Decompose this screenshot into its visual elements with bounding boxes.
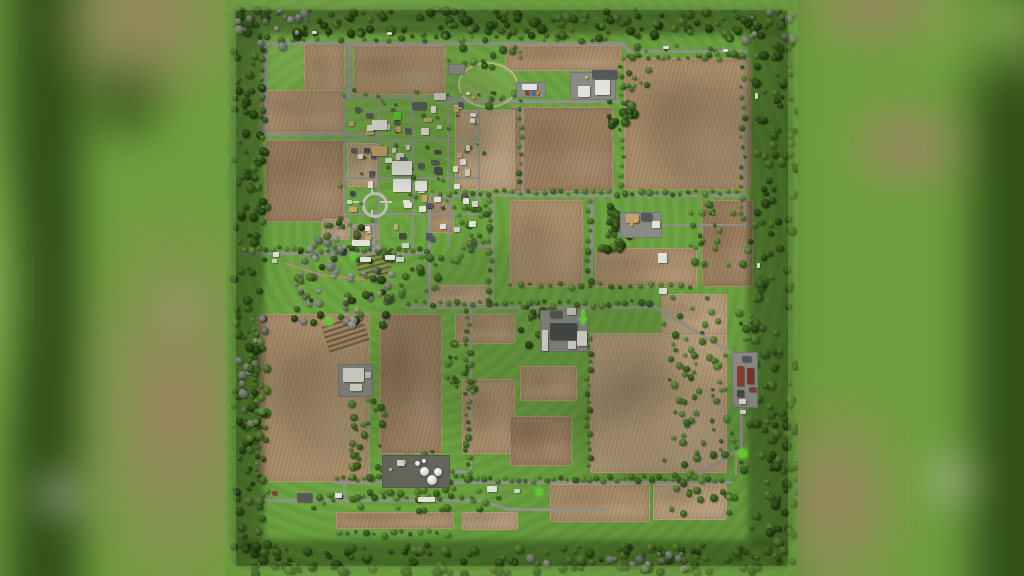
tree xyxy=(232,487,236,491)
building xyxy=(368,181,373,188)
tree xyxy=(254,468,258,472)
tree xyxy=(731,437,736,442)
field xyxy=(510,107,613,192)
town-house xyxy=(472,201,478,207)
dirt-path xyxy=(368,398,370,480)
road xyxy=(264,133,382,136)
tree xyxy=(499,98,502,101)
town-house xyxy=(350,191,354,195)
tree xyxy=(371,494,378,501)
tree xyxy=(638,284,643,289)
tree xyxy=(452,205,455,208)
tree xyxy=(249,213,258,222)
tree xyxy=(467,455,472,460)
tree xyxy=(260,67,265,72)
tree xyxy=(342,93,346,97)
tree xyxy=(292,562,298,568)
tree xyxy=(698,477,705,484)
tree xyxy=(587,198,592,203)
tree xyxy=(465,434,472,441)
tree xyxy=(720,16,725,21)
street xyxy=(343,139,478,141)
town-house xyxy=(402,243,409,248)
tree xyxy=(683,353,687,357)
tree xyxy=(381,411,386,416)
tree xyxy=(488,218,492,222)
tree xyxy=(328,11,334,17)
tree xyxy=(620,85,625,90)
tree xyxy=(446,93,449,96)
tree xyxy=(251,389,258,396)
tree xyxy=(608,123,614,129)
tree xyxy=(373,408,377,412)
tree xyxy=(305,293,310,298)
tree xyxy=(537,474,541,478)
tree xyxy=(460,558,467,565)
town-house xyxy=(405,128,411,134)
tree xyxy=(726,510,731,515)
rock xyxy=(789,34,798,43)
tree xyxy=(379,420,386,427)
tree xyxy=(496,496,501,501)
tree xyxy=(646,300,653,307)
tree xyxy=(337,183,342,188)
tree xyxy=(619,164,622,167)
tree xyxy=(252,156,257,161)
tree xyxy=(777,157,787,167)
tree xyxy=(502,188,506,192)
building xyxy=(352,240,370,246)
tree xyxy=(694,189,697,192)
tree xyxy=(680,510,687,517)
tree xyxy=(693,569,701,576)
tree xyxy=(446,552,451,557)
tree xyxy=(496,14,501,19)
tree xyxy=(460,570,469,576)
tree xyxy=(353,231,361,239)
tree xyxy=(459,17,463,21)
rock xyxy=(645,561,651,567)
tree xyxy=(701,7,711,17)
building xyxy=(415,181,427,191)
building xyxy=(297,493,312,502)
tree xyxy=(688,374,695,381)
town-house xyxy=(392,148,396,152)
tree xyxy=(619,92,623,96)
tree xyxy=(426,8,435,17)
tree xyxy=(252,377,257,382)
rock xyxy=(635,555,643,563)
building xyxy=(418,497,435,502)
tree xyxy=(734,27,741,34)
tree xyxy=(255,332,259,336)
tree xyxy=(458,253,463,258)
tree xyxy=(246,486,251,491)
tree xyxy=(730,50,738,58)
tree xyxy=(466,427,470,431)
tree xyxy=(619,21,625,27)
tree xyxy=(705,24,713,32)
tree xyxy=(476,488,480,492)
tree xyxy=(761,153,767,159)
tree xyxy=(245,469,250,474)
tree xyxy=(614,478,619,483)
tree xyxy=(607,114,612,119)
tree xyxy=(630,192,634,196)
rock xyxy=(612,557,616,561)
town-house xyxy=(454,184,460,189)
tree xyxy=(584,375,590,381)
tree xyxy=(348,400,356,408)
tree xyxy=(775,496,780,501)
tree xyxy=(585,548,594,557)
field xyxy=(505,45,621,71)
town-house xyxy=(454,106,459,112)
tree xyxy=(444,532,451,539)
tree xyxy=(669,506,675,512)
tree xyxy=(525,341,534,350)
town-house xyxy=(349,121,354,126)
tree xyxy=(448,493,454,499)
tree xyxy=(589,560,595,566)
tree xyxy=(277,245,281,249)
field xyxy=(625,58,751,190)
tree xyxy=(648,281,654,287)
tree xyxy=(233,329,243,339)
tree xyxy=(464,476,471,483)
tree xyxy=(712,245,718,251)
tree xyxy=(690,223,696,229)
town-house xyxy=(460,159,466,165)
tree xyxy=(453,474,458,479)
tree xyxy=(259,476,267,484)
building xyxy=(740,410,746,414)
tree xyxy=(639,81,642,84)
tree xyxy=(606,29,610,33)
tree xyxy=(438,192,442,196)
rock xyxy=(257,40,264,47)
rock xyxy=(326,262,335,271)
tree xyxy=(598,281,602,285)
building xyxy=(434,93,446,100)
tree xyxy=(360,422,366,428)
tree xyxy=(424,542,430,548)
tree xyxy=(264,488,270,494)
tree xyxy=(586,463,590,467)
road xyxy=(343,481,346,501)
tree xyxy=(309,298,313,302)
tree xyxy=(679,411,684,416)
tree xyxy=(607,203,613,209)
tree xyxy=(775,73,779,77)
tree xyxy=(413,194,418,199)
building xyxy=(595,80,610,95)
town-house xyxy=(365,226,370,231)
building xyxy=(389,468,392,471)
tree xyxy=(261,456,266,461)
tree xyxy=(598,302,605,309)
tree xyxy=(739,135,742,138)
tree xyxy=(341,475,345,479)
field xyxy=(462,512,518,530)
town-house xyxy=(437,125,442,129)
tree xyxy=(787,139,795,147)
tree xyxy=(463,392,466,395)
tree xyxy=(489,258,494,263)
tree xyxy=(416,14,423,21)
tree xyxy=(430,303,436,309)
tree xyxy=(470,191,475,196)
tree xyxy=(681,433,686,438)
tree xyxy=(253,419,259,425)
tree xyxy=(739,563,747,571)
town-house xyxy=(358,154,363,158)
tree xyxy=(368,248,371,251)
tree xyxy=(701,440,706,445)
tree xyxy=(517,179,522,184)
tree xyxy=(686,56,689,59)
tree xyxy=(534,191,538,195)
tree xyxy=(454,299,460,305)
tree xyxy=(258,408,266,416)
building xyxy=(641,213,652,221)
tree xyxy=(430,450,434,454)
field xyxy=(260,90,345,133)
tree xyxy=(572,477,579,484)
building xyxy=(737,390,744,397)
tree xyxy=(713,363,720,370)
tree xyxy=(358,312,363,317)
tree xyxy=(255,497,264,506)
tree xyxy=(302,38,305,41)
tree xyxy=(585,208,590,213)
tree xyxy=(394,103,397,106)
tree xyxy=(232,319,240,327)
building xyxy=(652,221,660,228)
town-house xyxy=(349,207,357,212)
rock xyxy=(384,282,392,290)
tree xyxy=(779,546,788,555)
tree xyxy=(759,219,765,225)
town-house xyxy=(421,128,429,135)
building xyxy=(755,93,758,99)
town-house xyxy=(457,153,461,158)
tree xyxy=(764,419,769,424)
tree xyxy=(574,189,578,193)
tree xyxy=(753,563,762,572)
tree xyxy=(483,204,487,208)
tree xyxy=(686,471,693,478)
town-house xyxy=(431,160,439,165)
tree xyxy=(748,314,752,318)
tree xyxy=(742,115,748,121)
tree xyxy=(260,85,265,90)
silo-tank xyxy=(427,475,437,485)
tree xyxy=(717,380,721,384)
tree xyxy=(380,489,385,494)
building xyxy=(747,368,754,384)
tree xyxy=(486,298,491,303)
tree xyxy=(331,498,335,502)
tree xyxy=(435,531,438,534)
tree xyxy=(523,478,527,482)
building xyxy=(737,366,744,386)
tree xyxy=(775,218,782,225)
tree xyxy=(516,143,521,148)
tree xyxy=(598,190,603,195)
town-house xyxy=(465,169,470,176)
tree xyxy=(565,477,568,480)
street xyxy=(343,97,478,99)
tree xyxy=(645,67,652,74)
tree xyxy=(516,170,522,176)
town-house xyxy=(431,106,437,113)
tree xyxy=(493,9,498,14)
tree xyxy=(470,546,479,555)
tree xyxy=(357,444,362,449)
tree xyxy=(776,245,784,253)
tree xyxy=(418,254,423,259)
tree xyxy=(686,190,690,194)
tree xyxy=(245,71,253,79)
tree xyxy=(714,51,719,56)
tree xyxy=(746,421,753,428)
tree xyxy=(482,499,489,506)
building xyxy=(396,257,404,262)
tree xyxy=(788,282,794,288)
tree xyxy=(248,88,255,95)
road xyxy=(348,42,351,99)
tree xyxy=(673,348,678,353)
tree xyxy=(437,497,442,502)
building xyxy=(749,387,756,392)
tree xyxy=(379,321,387,329)
tree xyxy=(668,282,673,287)
tree xyxy=(232,389,237,394)
tree xyxy=(464,343,467,346)
tree xyxy=(758,119,763,124)
tree xyxy=(788,72,792,76)
tree xyxy=(599,23,605,29)
silo-tank xyxy=(422,459,426,463)
tree xyxy=(258,208,265,215)
town-house xyxy=(453,166,458,173)
field xyxy=(336,512,454,529)
rock xyxy=(315,300,322,307)
tree xyxy=(350,452,357,459)
tree xyxy=(455,385,458,388)
building xyxy=(472,96,475,99)
building xyxy=(525,91,529,95)
tree xyxy=(490,52,496,58)
tree xyxy=(794,488,798,496)
building xyxy=(723,49,728,52)
building xyxy=(312,31,317,34)
tree xyxy=(231,157,236,162)
town-house xyxy=(351,148,357,153)
tree xyxy=(786,62,792,68)
tree xyxy=(782,416,788,422)
building xyxy=(578,86,590,97)
tree xyxy=(402,568,412,576)
tree xyxy=(317,311,325,319)
tree xyxy=(476,505,482,511)
tree xyxy=(453,342,457,346)
rock xyxy=(261,327,269,335)
tree xyxy=(618,173,623,178)
tree xyxy=(518,191,522,195)
rock xyxy=(278,42,287,51)
tree xyxy=(775,555,782,562)
blurred-backdrop-right xyxy=(798,0,1024,576)
tree xyxy=(761,255,766,260)
tree xyxy=(255,454,260,459)
tree xyxy=(467,350,473,356)
tree xyxy=(588,455,594,461)
tree xyxy=(469,233,473,237)
town-house xyxy=(454,227,460,233)
tree xyxy=(687,29,693,35)
tree xyxy=(416,264,424,272)
rock xyxy=(316,289,320,293)
tree xyxy=(443,504,451,512)
tree xyxy=(374,38,378,42)
tree xyxy=(465,315,469,319)
building xyxy=(542,330,548,351)
tree xyxy=(703,556,707,560)
tree xyxy=(511,92,516,97)
tree xyxy=(772,90,778,96)
building xyxy=(273,252,279,257)
tree xyxy=(787,226,797,236)
tree xyxy=(682,399,688,405)
tree xyxy=(402,25,407,30)
rock xyxy=(779,14,785,20)
tree xyxy=(628,284,632,288)
tree xyxy=(441,206,444,209)
tree xyxy=(614,300,620,306)
tree xyxy=(621,146,624,149)
tree xyxy=(245,497,253,505)
tree xyxy=(258,114,263,119)
tree xyxy=(459,44,466,51)
tree xyxy=(716,56,722,62)
tree xyxy=(744,247,751,254)
roundabout xyxy=(362,192,388,218)
tree xyxy=(445,199,448,202)
tree xyxy=(710,451,717,458)
tree xyxy=(753,149,761,157)
tree xyxy=(691,258,699,266)
tree xyxy=(467,361,474,368)
tree xyxy=(494,34,498,38)
tree xyxy=(582,188,588,194)
town-house xyxy=(470,118,475,123)
field xyxy=(520,366,577,401)
tree xyxy=(518,327,524,333)
tree xyxy=(461,245,465,249)
tree xyxy=(379,13,387,21)
tree xyxy=(395,505,400,510)
tree xyxy=(612,222,619,229)
tree xyxy=(560,545,566,551)
tree xyxy=(502,475,507,480)
tree xyxy=(616,547,621,552)
tree xyxy=(249,110,257,118)
tree xyxy=(670,25,677,32)
tree xyxy=(528,32,535,39)
tree xyxy=(590,38,594,42)
